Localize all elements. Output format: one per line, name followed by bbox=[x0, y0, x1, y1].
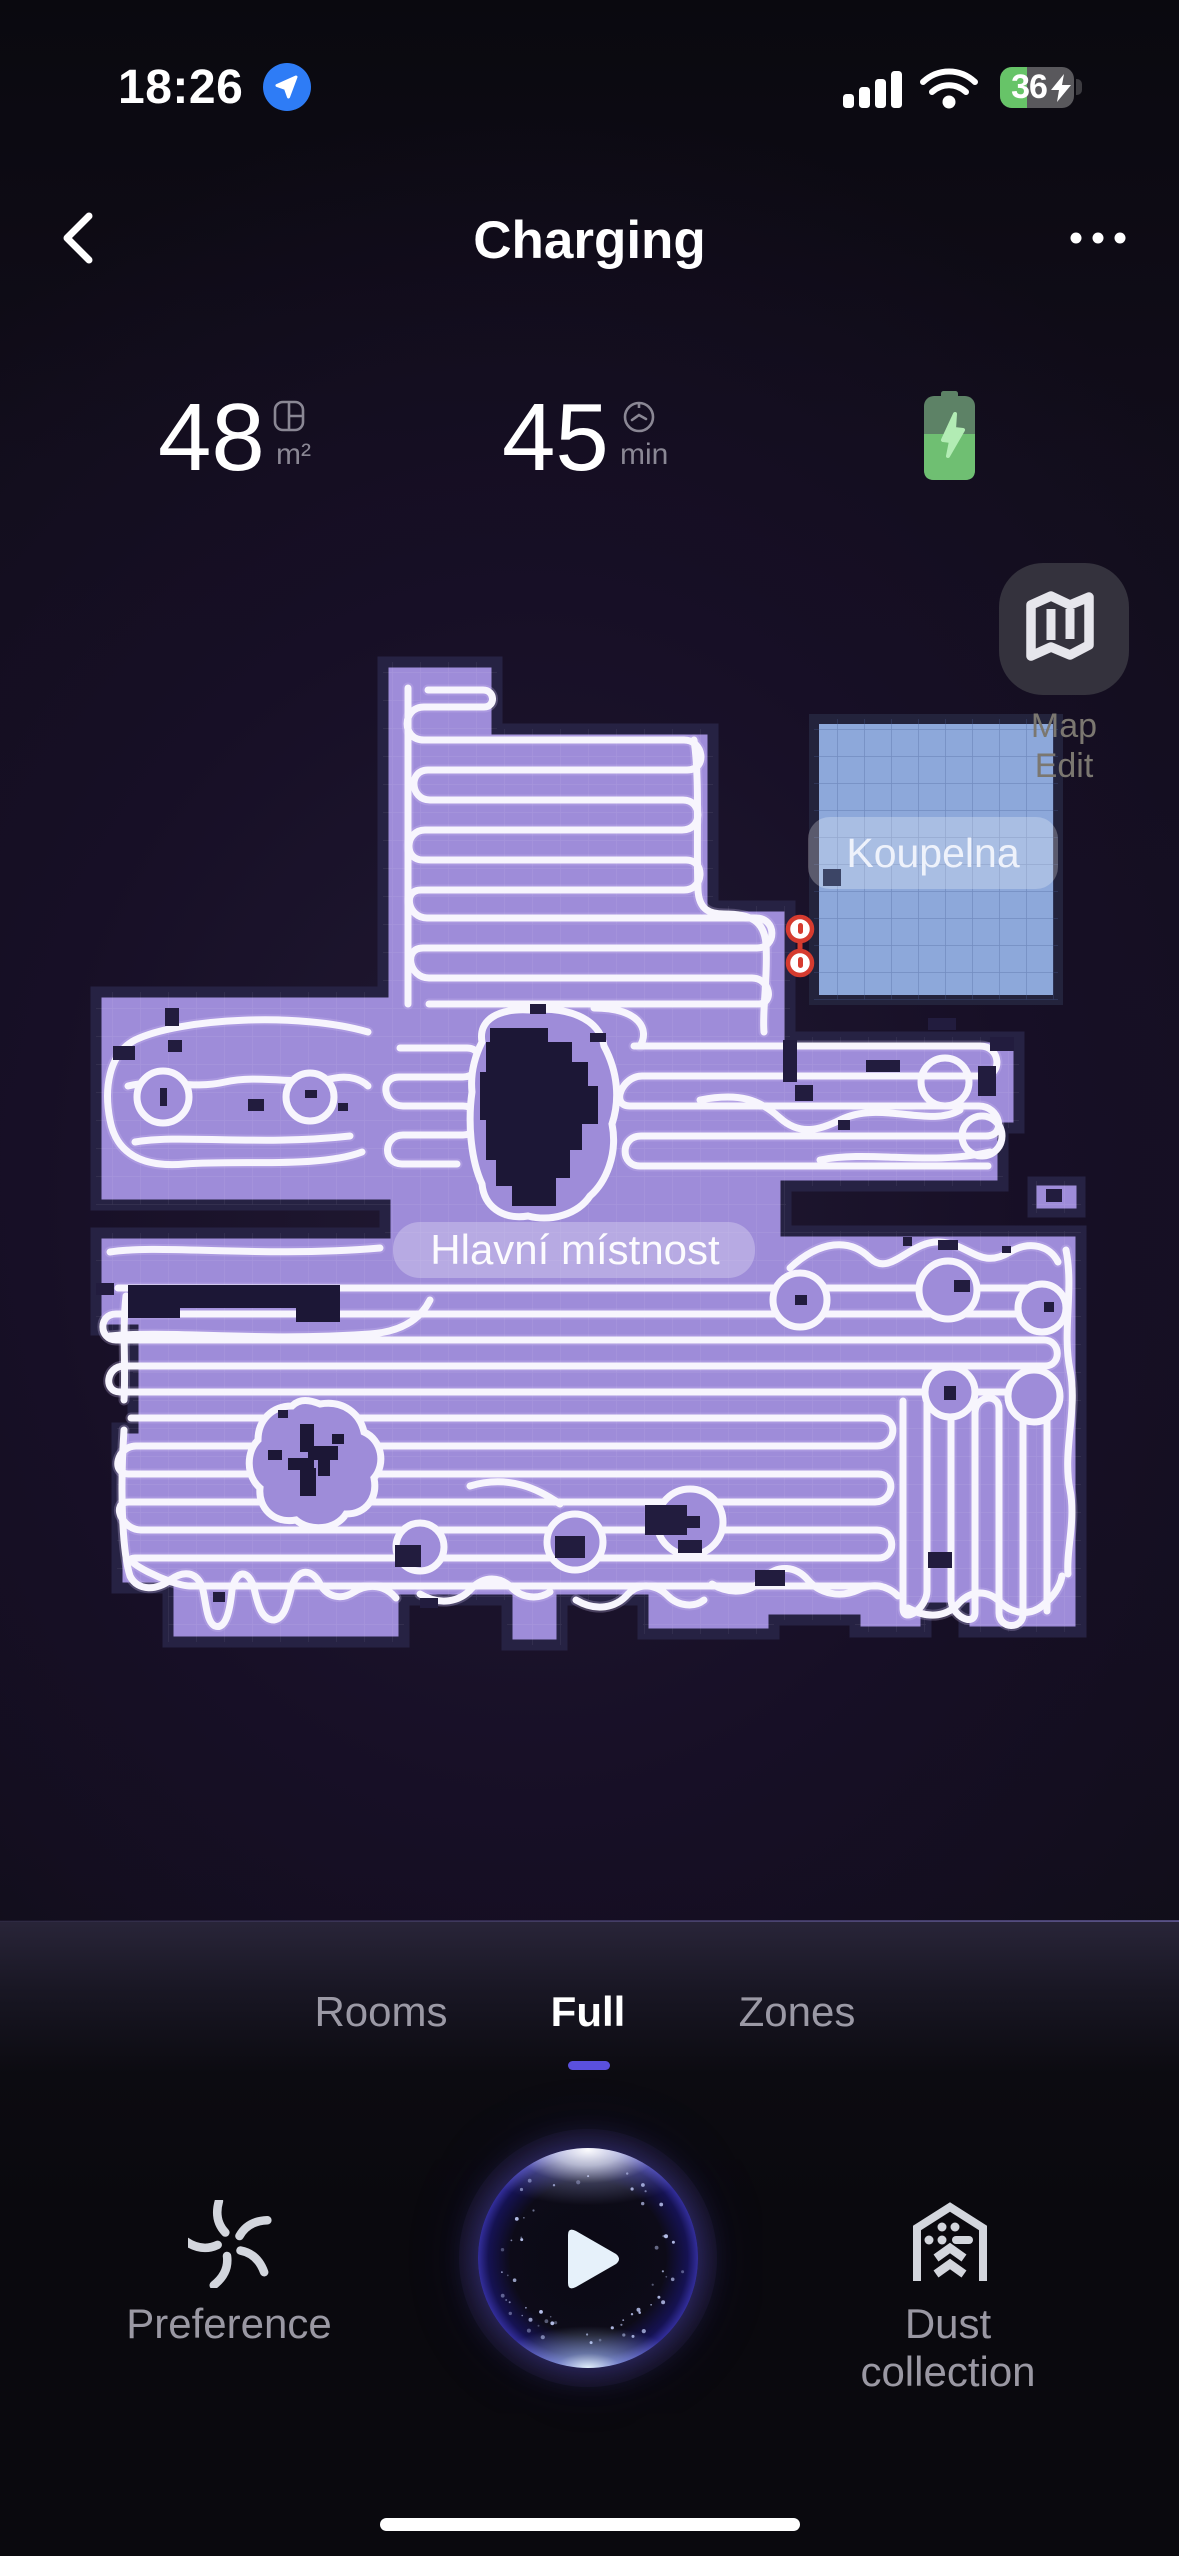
svg-text:Koupelna: Koupelna bbox=[846, 830, 1019, 876]
svg-text:Hlavní místnost: Hlavní místnost bbox=[430, 1226, 720, 1273]
